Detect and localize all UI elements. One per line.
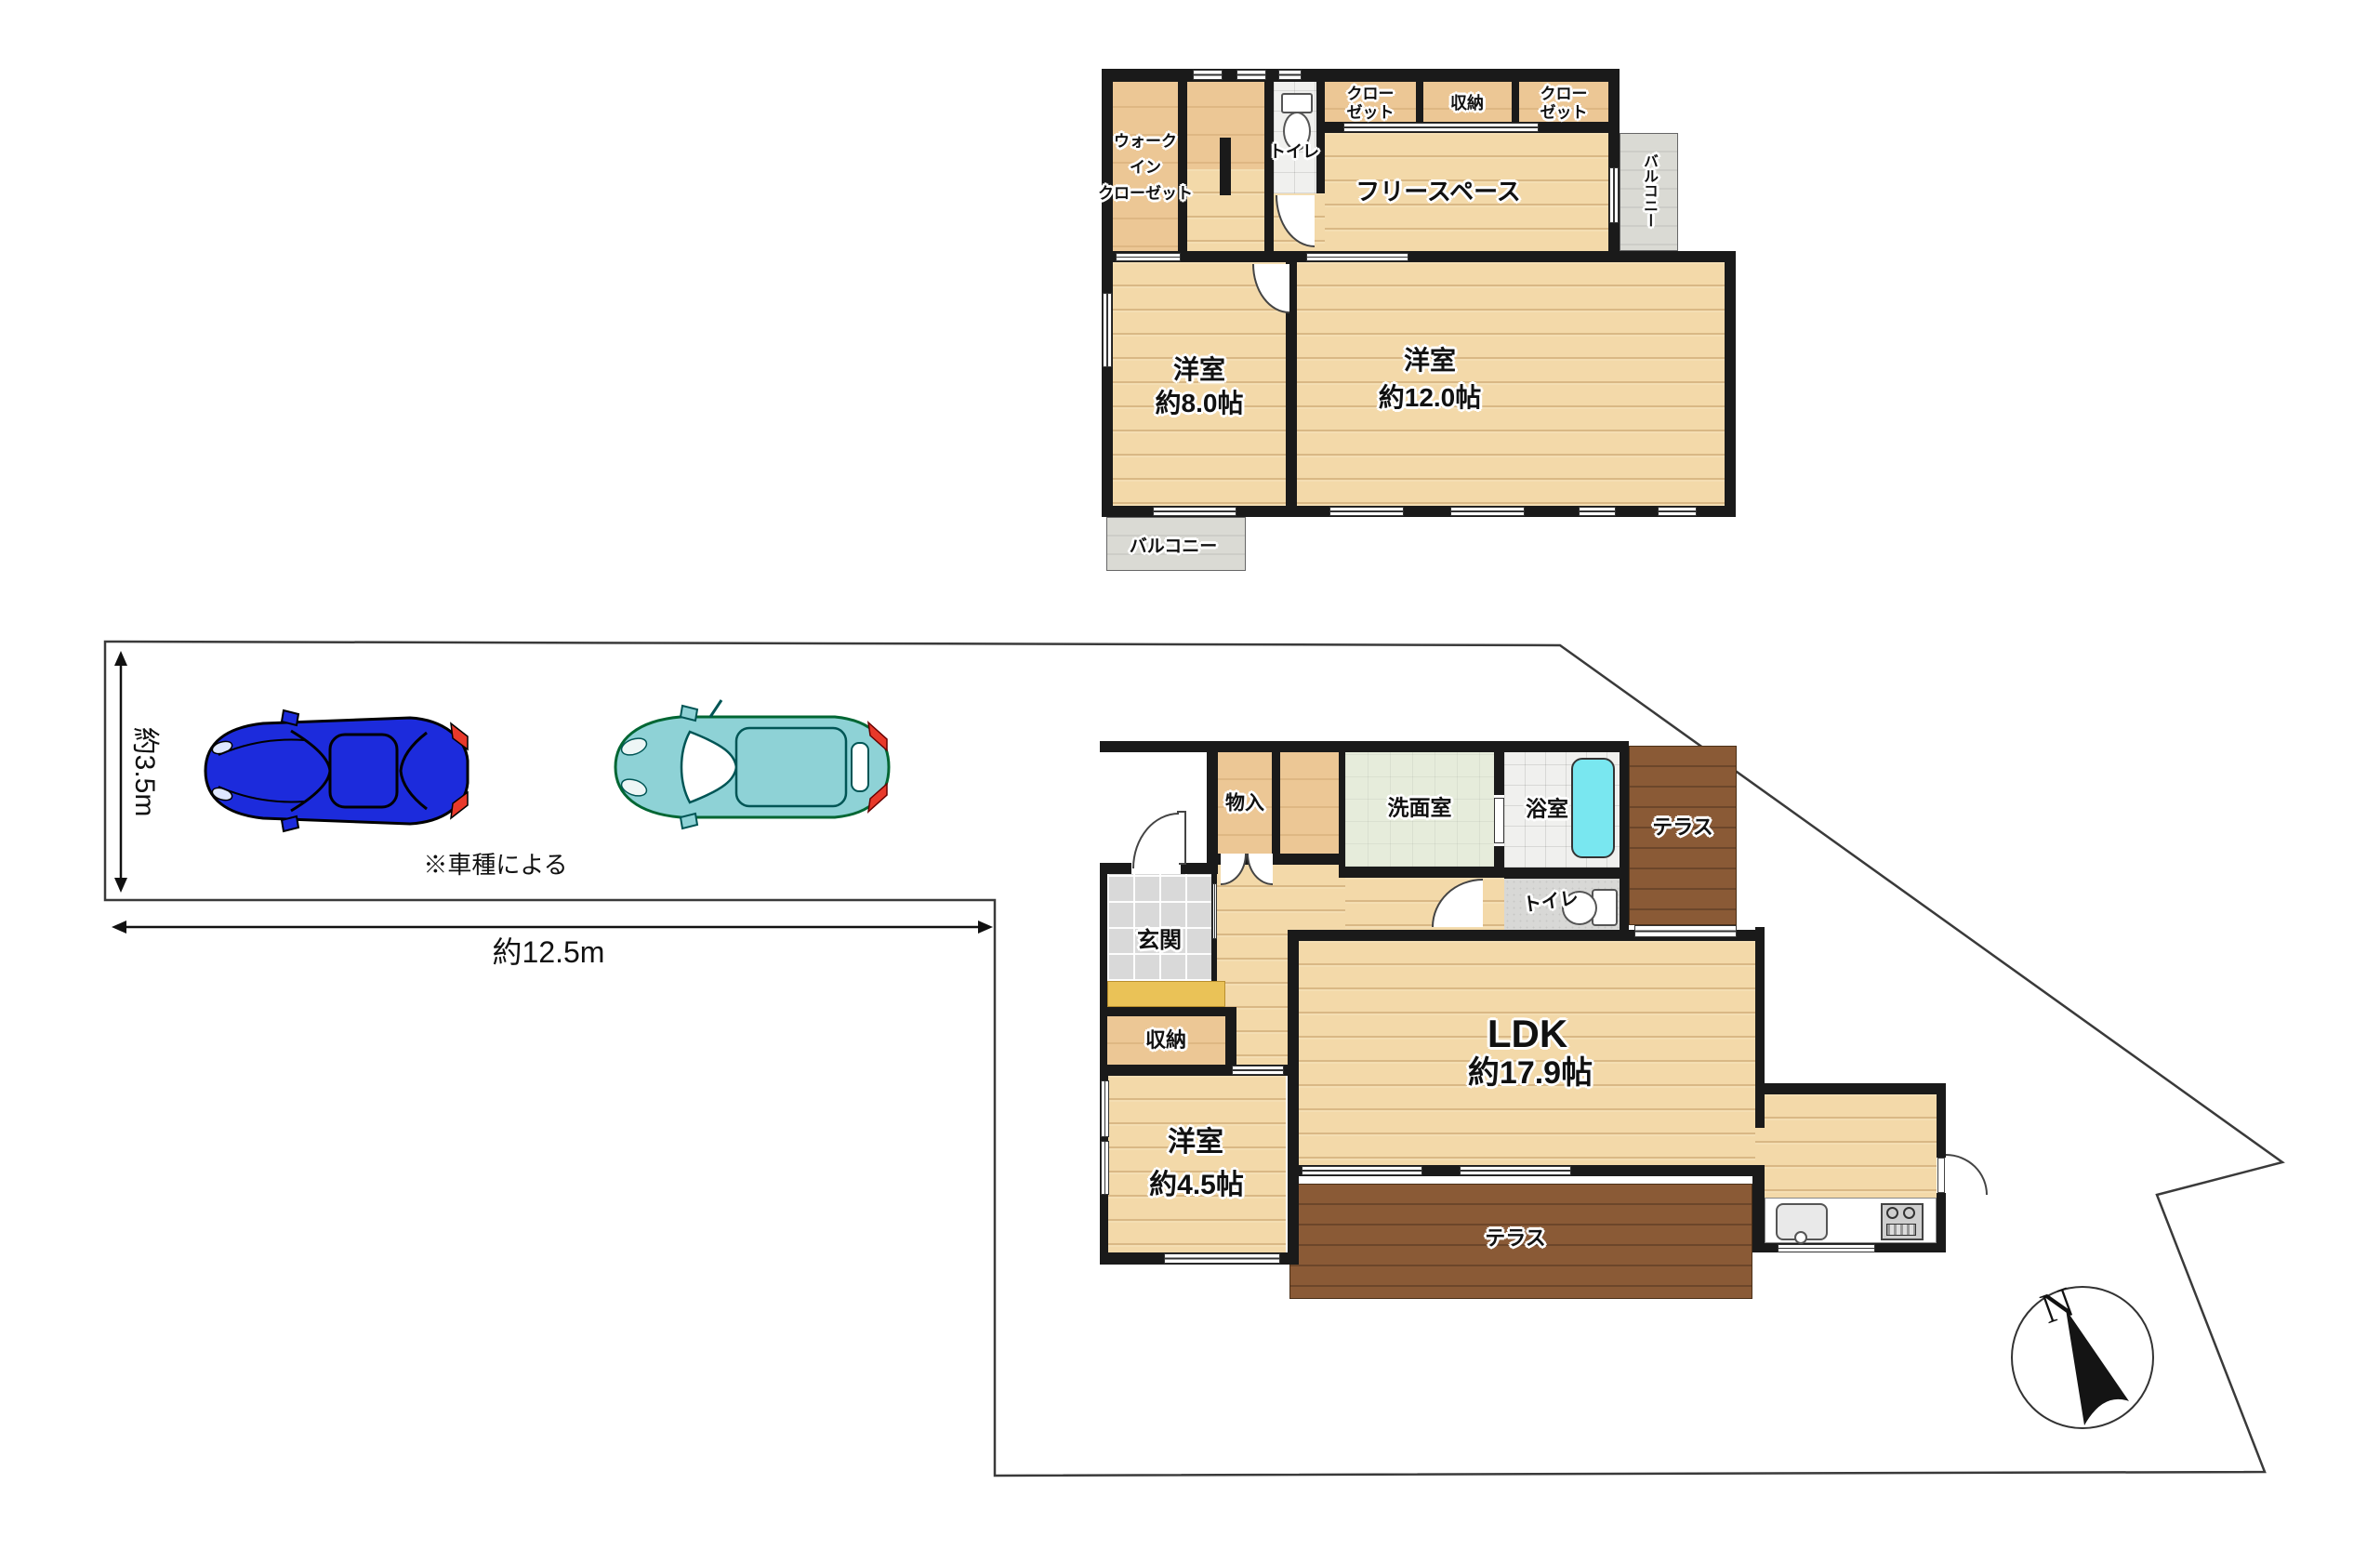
label-balcony-bottom: バルコニー <box>1130 538 1218 556</box>
label-wic-1: ウォーク <box>1114 134 1177 150</box>
depth-dimension-label: 約3.5m <box>130 727 158 817</box>
bathtub-icon <box>1571 758 1615 858</box>
label-ldk-name: LDK <box>1487 1014 1567 1053</box>
entrance-step <box>1107 981 1225 1007</box>
depth-dimension-arrow <box>114 651 127 893</box>
stairs-1f <box>1280 752 1339 865</box>
label-bedroom8-name: 洋室 <box>1173 357 1225 383</box>
label-free-space: フリースペース <box>1355 179 1521 204</box>
stove-burner-icon <box>1903 1207 1915 1219</box>
label-wic-3: クローゼット <box>1098 186 1193 202</box>
label-closet-right-2: ゼット <box>1540 105 1588 121</box>
floor-plan-canvas: 約3.5m 約12.5m ※車種による N ウォーク イン クローゼ <box>0 0 2380 1550</box>
toilet-icon <box>1281 93 1313 113</box>
kitchen-door-leaf <box>1937 1158 1945 1193</box>
label-storage-2f: 収納 <box>1450 95 1484 112</box>
sink-faucet-icon <box>1794 1231 1807 1244</box>
car-top-view-blue-icon <box>191 697 481 844</box>
car-top-view-teal-icon <box>602 693 902 841</box>
label-terrace-lower: テラス <box>1485 1228 1546 1249</box>
label-entrance: 玄関 <box>1137 930 1182 952</box>
label-bedroom45-size: 約4.5帖 <box>1149 1172 1244 1199</box>
compass-north-icon <box>2012 1287 2153 1428</box>
label-wic-2: イン <box>1130 160 1161 176</box>
label-closet-left-2: ゼット <box>1347 105 1395 121</box>
compass-north-label: N <box>2036 1280 2080 1331</box>
label-bedroom8-size: 約8.0帖 <box>1156 391 1244 417</box>
label-bedroom12-name: 洋室 <box>1404 348 1456 374</box>
label-washroom: 洗面室 <box>1388 798 1452 819</box>
label-storage-hall: 物入 <box>1225 794 1264 814</box>
room-bedroom-45 <box>1108 1076 1286 1252</box>
width-dimension-arrow <box>112 921 993 934</box>
label-bedroom45-name: 洋室 <box>1168 1129 1223 1157</box>
label-ldk-size: 約17.9帖 <box>1468 1057 1593 1089</box>
width-dimension-label: 約12.5m <box>493 937 605 967</box>
label-terrace-upper: テラス <box>1652 817 1713 838</box>
car-note-label: ※車種による <box>423 853 567 877</box>
stove-burner-icon <box>1886 1207 1898 1219</box>
kitchen-door-arc <box>1946 1154 1988 1195</box>
label-storage-1f: 収納 <box>1145 1030 1186 1051</box>
label-bedroom12-size: 約12.0帖 <box>1379 385 1482 411</box>
label-closet-right-1: クロー <box>1540 86 1588 102</box>
label-toilet-2f: トイレ <box>1269 143 1319 160</box>
label-closet-left-1: クロー <box>1347 86 1395 102</box>
stove-grill-icon <box>1886 1224 1916 1236</box>
label-bathroom: 浴室 <box>1526 799 1568 820</box>
room-bedroom-8 <box>1113 262 1286 506</box>
label-balcony-side: バルコニー <box>1641 153 1656 228</box>
front-door-arc <box>1132 813 1179 868</box>
room-bedroom-12 <box>1297 262 1725 506</box>
